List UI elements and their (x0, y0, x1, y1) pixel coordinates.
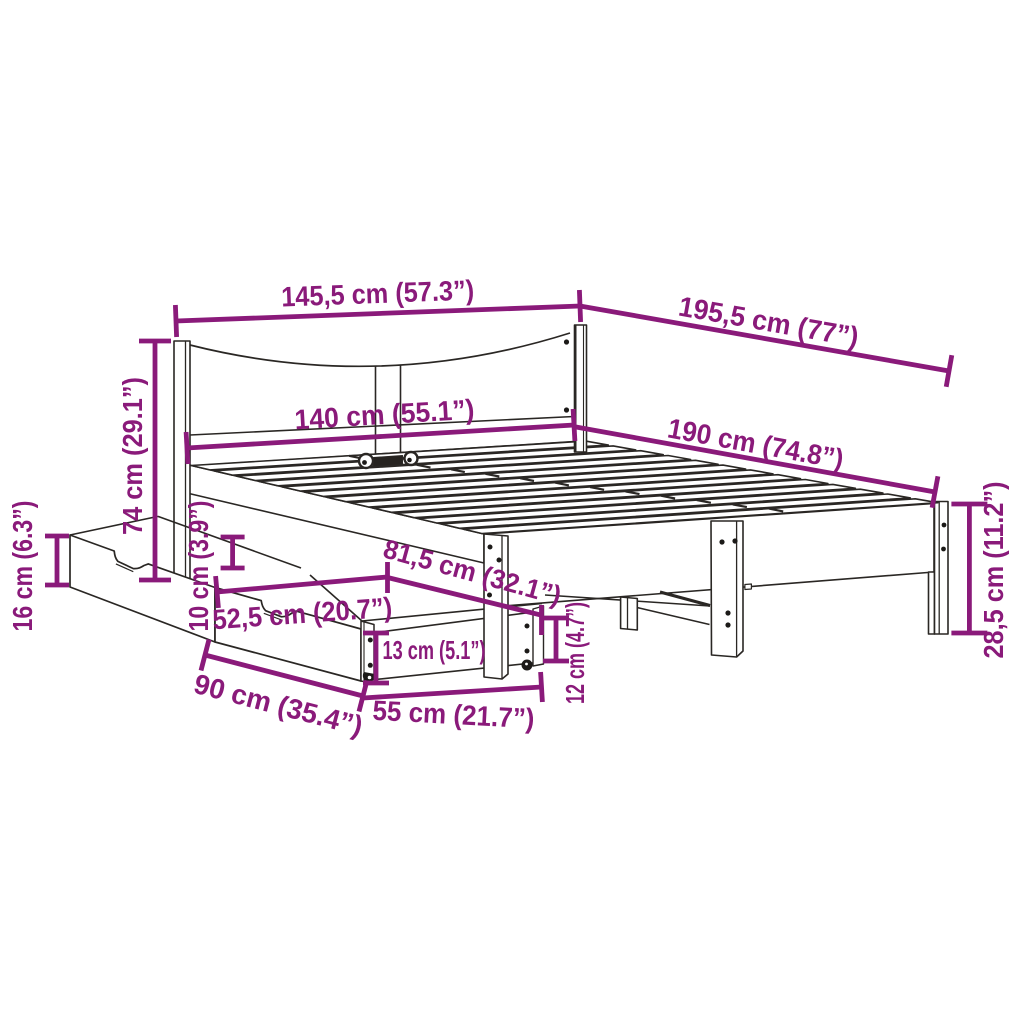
svg-text:16 cm (6.3”): 16 cm (6.3”) (7, 501, 38, 632)
svg-text:10 cm (3.9”): 10 cm (3.9”) (183, 501, 214, 632)
svg-text:13 cm (5.1”): 13 cm (5.1”) (383, 635, 486, 665)
svg-text:12 cm (4.7”): 12 cm (4.7”) (560, 602, 590, 704)
svg-text:28,5 cm (11.2”): 28,5 cm (11.2”) (978, 482, 1009, 659)
svg-text:74 cm (29.1”): 74 cm (29.1”) (117, 377, 148, 535)
